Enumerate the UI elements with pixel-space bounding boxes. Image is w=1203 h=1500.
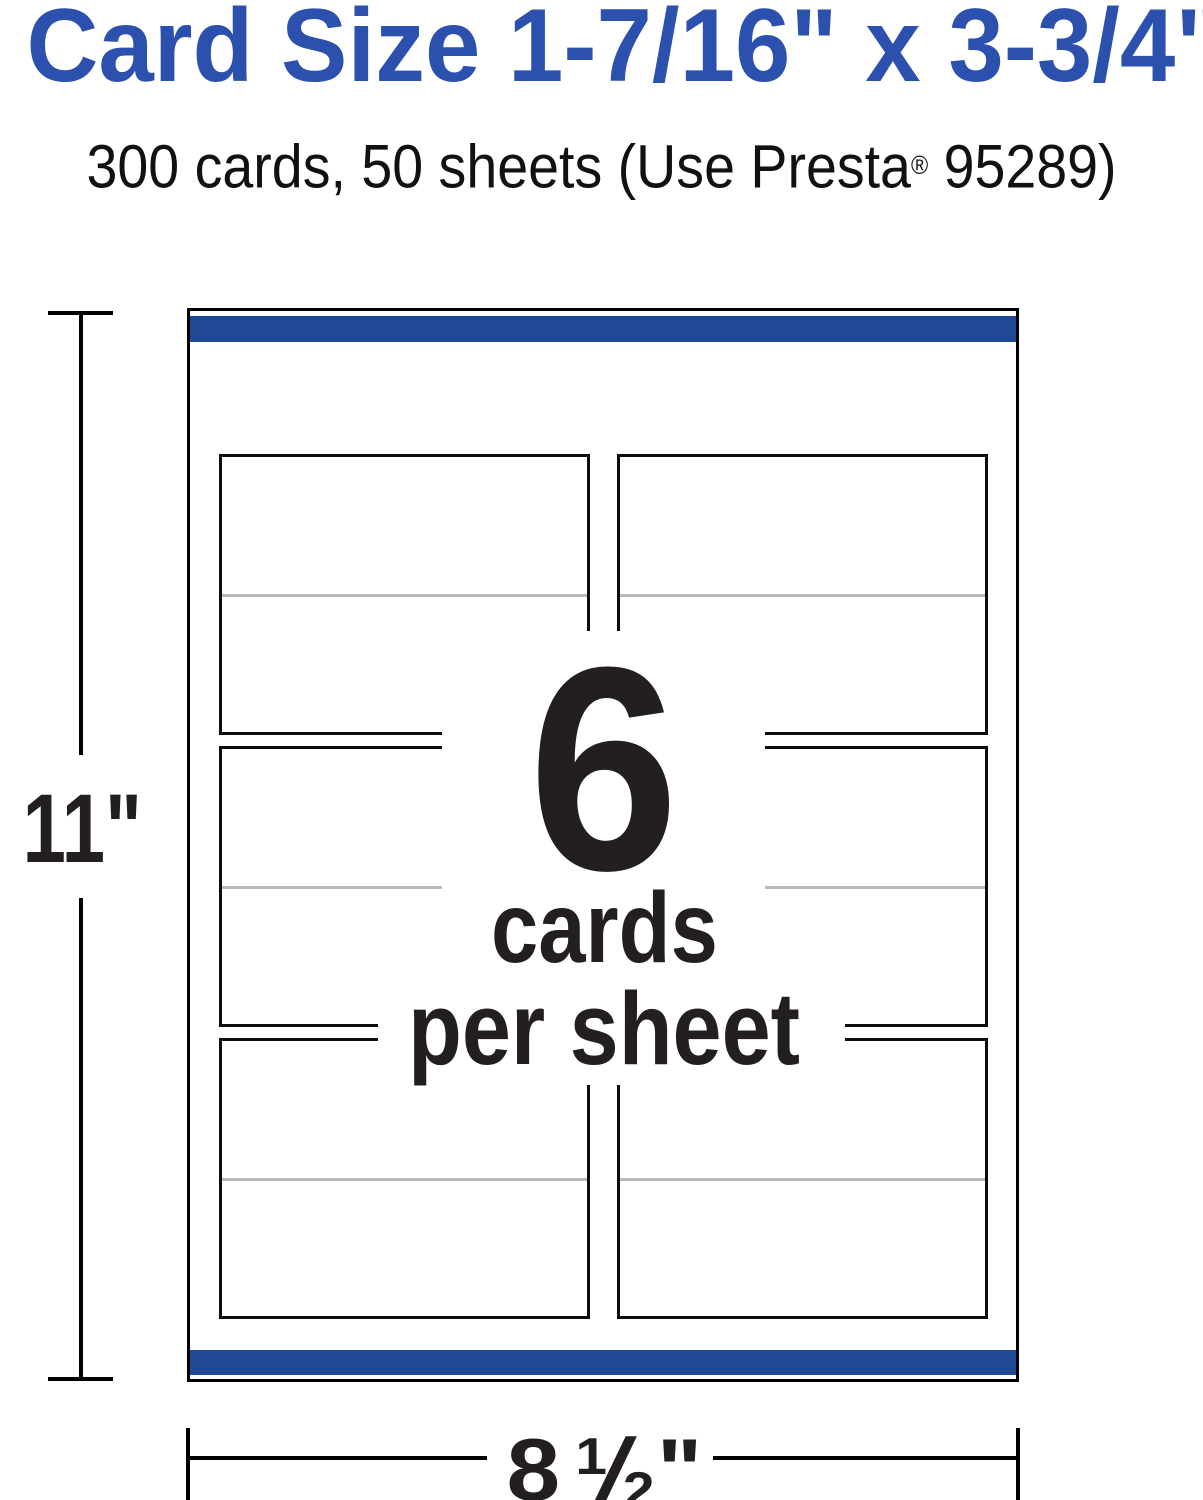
height-dimension-line-upper — [79, 313, 83, 755]
subtitle-before-reg: 300 cards, 50 sheets (Use Presta — [86, 132, 910, 200]
width-dimension-cap-left — [186, 1428, 190, 1500]
page-subtitle-text: 300 cards, 50 sheets (Use Presta® 95289) — [86, 134, 1116, 198]
registered-trademark-symbol: ® — [911, 152, 928, 180]
sheet-bottom-blue-bar — [190, 1350, 1016, 1375]
fold-line — [620, 1178, 985, 1181]
page-title: Card Size 1-7/16" x 3-3/4" — [0, 0, 1203, 98]
product-template-diagram: Card Size 1-7/16" x 3-3/4" 300 cards, 50… — [0, 0, 1203, 1500]
fold-line — [222, 1178, 587, 1181]
sheet-top-blue-bar — [190, 316, 1016, 342]
width-dimension-label-text: 81/2" — [506, 1407, 702, 1500]
subtitle-after-reg: 95289) — [928, 132, 1116, 200]
cards-per-sheet-word-persheet-text: per sheet — [408, 976, 800, 1082]
page-subtitle: 300 cards, 50 sheets (Use Presta® 95289) — [0, 134, 1203, 198]
height-dimension-line-lower — [79, 898, 83, 1380]
cards-per-sheet-word-persheet: per sheet — [304, 976, 904, 1082]
width-dimension-cap-right — [1016, 1428, 1020, 1500]
fold-line — [222, 594, 587, 597]
height-dimension-label: 11" — [2, 779, 162, 879]
width-dimension-label: 81/2" — [304, 1407, 904, 1500]
width-inch-mark: " — [656, 1420, 702, 1500]
cards-per-sheet-word-cards-text: cards — [491, 875, 718, 981]
height-dimension-cap-bottom — [48, 1377, 113, 1381]
fold-line — [620, 594, 985, 597]
width-whole-number: 8 — [506, 1420, 560, 1500]
height-dimension-cap-top — [48, 311, 113, 315]
cards-per-sheet-word-cards: cards — [404, 875, 804, 981]
height-dimension-label-text: 11" — [22, 779, 142, 879]
page-title-text: Card Size 1-7/16" x 3-3/4" — [26, 0, 1203, 98]
